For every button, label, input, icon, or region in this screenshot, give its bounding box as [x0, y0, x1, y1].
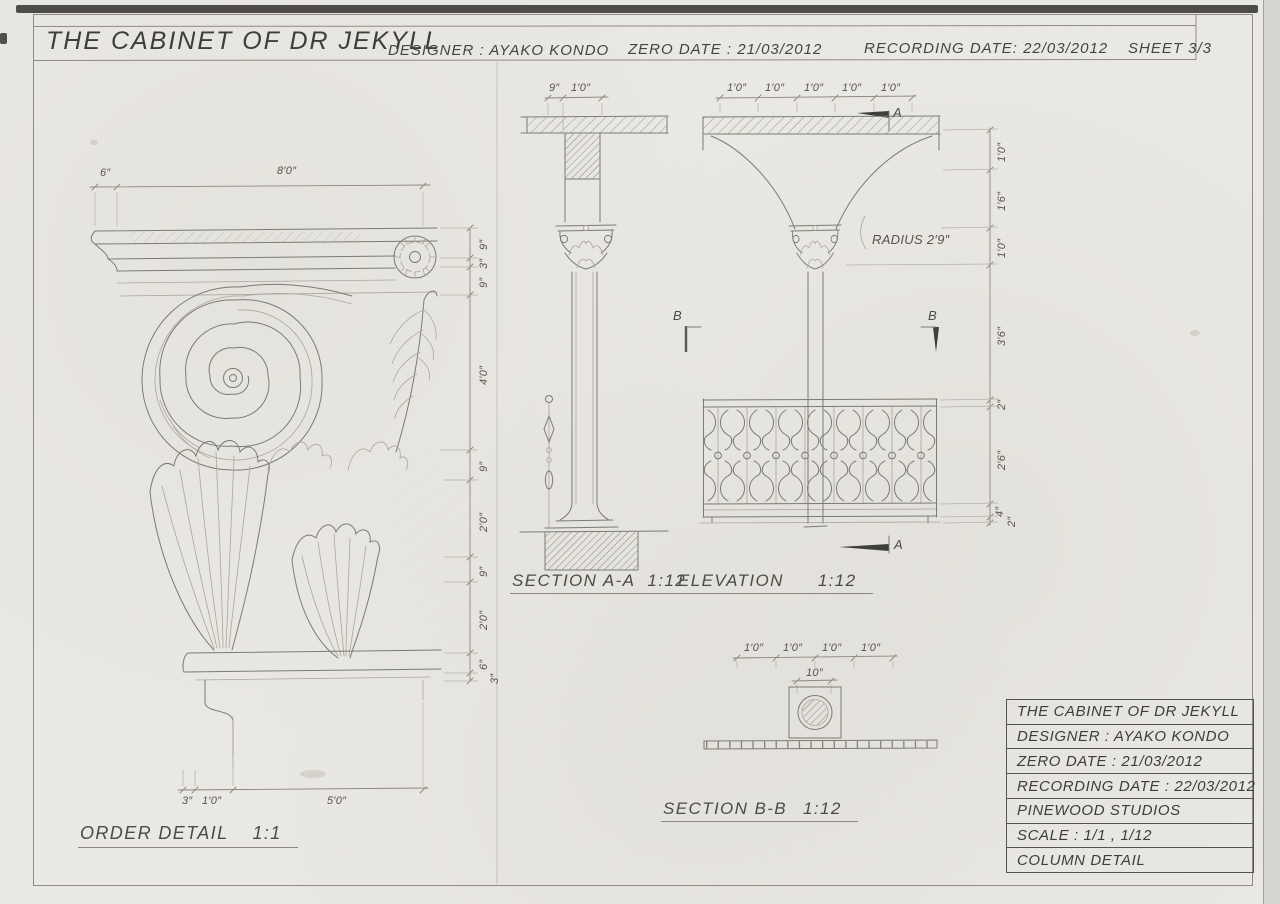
dimension-label: 2′0″ — [478, 513, 490, 532]
dimension-label: 1′0″ — [822, 642, 841, 654]
dimension-label: 2′6″ — [996, 451, 1008, 470]
dimension-label: 6″ — [478, 659, 490, 670]
dimension-label: 9″ — [478, 461, 490, 472]
section-marker-b-left: B — [673, 308, 682, 323]
title-block: THE CABINET OF DR JEKYLL DESIGNER : AYAK… — [1006, 699, 1254, 873]
dimension-label: 1′0″ — [744, 642, 763, 654]
dimension-label: 4′0″ — [478, 366, 490, 385]
order-detail-drawing — [90, 183, 478, 793]
header-recording-date: RECORDING DATE: 22/03/2012 — [864, 40, 1108, 57]
elevation-label: ELEVATION1:12 — [676, 570, 873, 594]
title-block-row: ZERO DATE : 21/03/2012 — [1007, 749, 1253, 774]
section-marker-a-top: A — [893, 105, 902, 120]
dimension-label: 9″ — [549, 82, 560, 94]
title-block-row: DESIGNER : AYAKO KONDO — [1007, 725, 1253, 750]
drawing-name: ORDER DETAIL — [80, 823, 229, 843]
dimension-label: 2″ — [996, 399, 1008, 410]
header-designer: DESIGNER : AYAKO KONDO — [388, 42, 609, 59]
dimension-label: 3″ — [478, 258, 490, 269]
dimension-label: 1′0″ — [861, 642, 880, 654]
section-bb-label: SECTION B-B1:12 — [661, 798, 858, 822]
dimension-label: 3′6″ — [996, 327, 1008, 346]
section-marker-a-bottom: A — [894, 537, 903, 552]
elevation-drawing — [686, 95, 998, 553]
dimension-label: 5′0″ — [327, 795, 346, 807]
title-block-row: COLUMN DETAIL — [1007, 848, 1253, 872]
dimension-label: 1′0″ — [202, 795, 221, 807]
drawing-scale: 1:12 — [818, 571, 857, 590]
drawing-sheet: THE CABINET OF DR JEKYLL DESIGNER : AYAK… — [0, 0, 1280, 904]
dimension-label: 3″ — [182, 795, 193, 807]
dimension-label: 1′0″ — [996, 143, 1008, 162]
drawing-scale: 1:12 — [803, 799, 842, 818]
dimension-label: 4″ — [994, 506, 1006, 517]
dimension-label: 9″ — [478, 566, 490, 577]
order-detail-label: ORDER DETAIL1:1 — [78, 822, 298, 848]
section-marker-b-right: B — [928, 308, 937, 323]
title-block-row: SCALE : 1/1 , 1/12 — [1007, 824, 1253, 849]
sheet-title: THE CABINET OF DR JEKYLL — [46, 27, 441, 56]
drawing-name: ELEVATION — [678, 571, 784, 590]
dimension-label: 1′0″ — [804, 82, 823, 94]
drawing-name: SECTION B-B — [663, 799, 787, 818]
title-block-row: RECORDING DATE : 22/03/2012 — [1007, 774, 1253, 799]
dimension-label: 2″ — [1006, 516, 1018, 527]
dimension-label: 1′0″ — [996, 239, 1008, 258]
drawing-scale: 1:1 — [253, 823, 282, 843]
drawing-name: SECTION A-A — [512, 571, 635, 590]
section-aa-label: SECTION A-A1:12 — [510, 570, 702, 594]
title-block-row: THE CABINET OF DR JEKYLL — [1007, 700, 1253, 725]
dimension-label: 10″ — [806, 667, 823, 679]
dimension-label: 2′0″ — [478, 611, 490, 630]
dimension-label: 1′0″ — [842, 82, 861, 94]
dimension-label: 9″ — [478, 277, 490, 288]
header-zero-date: ZERO DATE : 21/03/2012 — [628, 41, 822, 58]
dimension-label: 1′0″ — [881, 82, 900, 94]
dimension-label: 3″ — [489, 673, 501, 684]
dimension-label: 1′0″ — [571, 82, 590, 94]
dimension-label: 8′0″ — [277, 165, 296, 177]
dimension-label: 9″ — [478, 239, 490, 250]
dimension-label: 6″ — [100, 167, 111, 179]
dimension-label: 1′0″ — [727, 82, 746, 94]
header-sheet-number: SHEET 3/3 — [1128, 40, 1212, 57]
section-aa-drawing — [520, 95, 668, 570]
dimension-label: 1′0″ — [765, 82, 784, 94]
title-block-row: PINEWOOD STUDIOS — [1007, 799, 1253, 824]
dimension-label: 1′6″ — [996, 192, 1008, 211]
dimension-label: 1′0″ — [783, 642, 802, 654]
radius-note: RADIUS 2′9″ — [872, 232, 950, 247]
